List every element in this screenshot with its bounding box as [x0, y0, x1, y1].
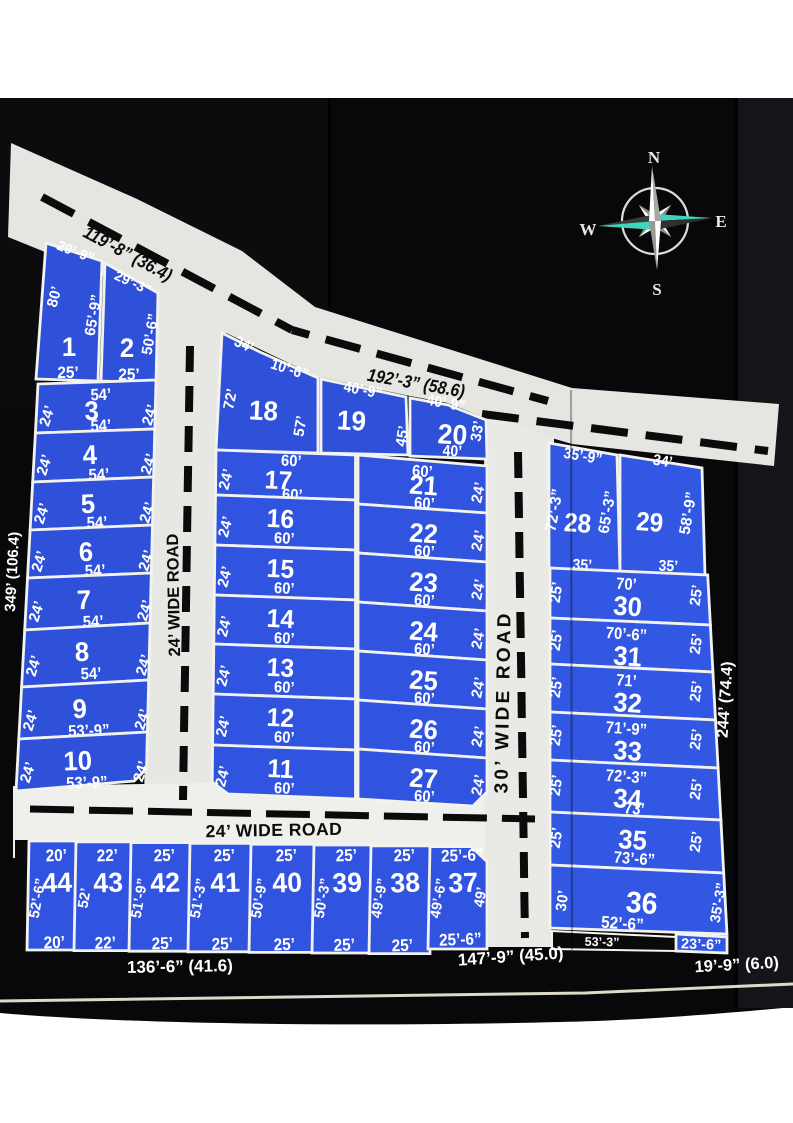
svg-text:43: 43 [93, 866, 124, 898]
svg-text:57’: 57’ [290, 414, 310, 437]
svg-text:25’-6”: 25’-6” [439, 930, 482, 950]
svg-text:N: N [648, 148, 661, 167]
svg-text:7: 7 [76, 584, 91, 615]
svg-text:25’: 25’ [547, 581, 567, 604]
svg-text:19: 19 [336, 405, 367, 437]
svg-text:53’-9”: 53’-9” [66, 774, 108, 793]
svg-text:9: 9 [72, 693, 87, 724]
svg-text:1: 1 [62, 331, 76, 362]
svg-text:29: 29 [635, 507, 664, 538]
svg-text:60’: 60’ [274, 728, 295, 747]
svg-text:25’: 25’ [687, 728, 707, 751]
svg-text:25’: 25’ [211, 934, 233, 954]
svg-text:28: 28 [563, 508, 592, 539]
svg-text:25’: 25’ [391, 936, 413, 956]
svg-text:25’: 25’ [335, 846, 357, 866]
svg-text:25’: 25’ [151, 934, 173, 954]
svg-text:24’ WIDE ROAD: 24’ WIDE ROAD [205, 819, 342, 841]
svg-text:30’: 30’ [553, 889, 573, 912]
svg-text:22’: 22’ [96, 846, 118, 866]
svg-text:30’ WIDE ROAD: 30’ WIDE ROAD [491, 610, 515, 793]
svg-text:60’: 60’ [414, 787, 436, 806]
svg-text:25’: 25’ [687, 680, 707, 703]
svg-text:20’: 20’ [43, 933, 65, 953]
svg-text:38: 38 [390, 866, 421, 898]
svg-text:22’: 22’ [94, 933, 116, 953]
svg-text:8: 8 [74, 636, 89, 667]
svg-text:2: 2 [120, 332, 134, 363]
svg-text:136’-6” (41.6): 136’-6” (41.6) [127, 956, 233, 977]
svg-text:25’: 25’ [393, 846, 415, 866]
svg-text:42: 42 [150, 866, 181, 898]
svg-text:60’: 60’ [274, 678, 295, 697]
svg-text:39: 39 [332, 866, 363, 898]
svg-text:30: 30 [612, 590, 643, 623]
svg-text:25’: 25’ [57, 363, 78, 382]
svg-text:24’ WIDE ROAD: 24’ WIDE ROAD [164, 533, 184, 656]
svg-text:40: 40 [272, 866, 303, 898]
svg-text:54’: 54’ [80, 665, 101, 684]
svg-text:25’: 25’ [153, 846, 175, 866]
svg-text:25’: 25’ [547, 676, 567, 699]
svg-text:25’: 25’ [333, 935, 355, 955]
svg-text:73’-6”: 73’-6” [613, 849, 655, 870]
svg-text:53’-3”: 53’-3” [585, 935, 620, 950]
svg-text:25’: 25’ [687, 778, 707, 801]
svg-text:18: 18 [248, 395, 279, 427]
svg-text:60’: 60’ [274, 529, 295, 548]
svg-text:20’: 20’ [45, 846, 67, 866]
svg-text:E: E [715, 212, 726, 231]
svg-text:25’-6”: 25’-6” [441, 846, 484, 866]
svg-text:33’: 33’ [467, 419, 487, 442]
svg-text:41: 41 [210, 866, 241, 898]
svg-text:60’: 60’ [274, 779, 295, 798]
svg-text:60’: 60’ [274, 579, 295, 598]
svg-text:25’: 25’ [547, 774, 567, 797]
svg-text:25’: 25’ [275, 846, 297, 866]
svg-text:25’: 25’ [687, 584, 707, 607]
svg-text:25’: 25’ [687, 830, 707, 853]
svg-text:52’-6”: 52’-6” [601, 913, 645, 935]
svg-text:25’: 25’ [213, 846, 235, 866]
svg-text:W: W [580, 220, 597, 239]
svg-text:S: S [652, 280, 661, 299]
svg-text:34’: 34’ [652, 452, 674, 472]
svg-text:23’-6”: 23’-6” [681, 936, 722, 953]
svg-text:25’: 25’ [547, 826, 567, 849]
svg-text:25’: 25’ [547, 724, 567, 747]
svg-text:25’: 25’ [687, 632, 707, 655]
svg-text:25’: 25’ [273, 935, 295, 955]
svg-text:40’: 40’ [442, 443, 462, 461]
svg-text:25’: 25’ [547, 629, 567, 652]
svg-text:10: 10 [63, 745, 93, 777]
